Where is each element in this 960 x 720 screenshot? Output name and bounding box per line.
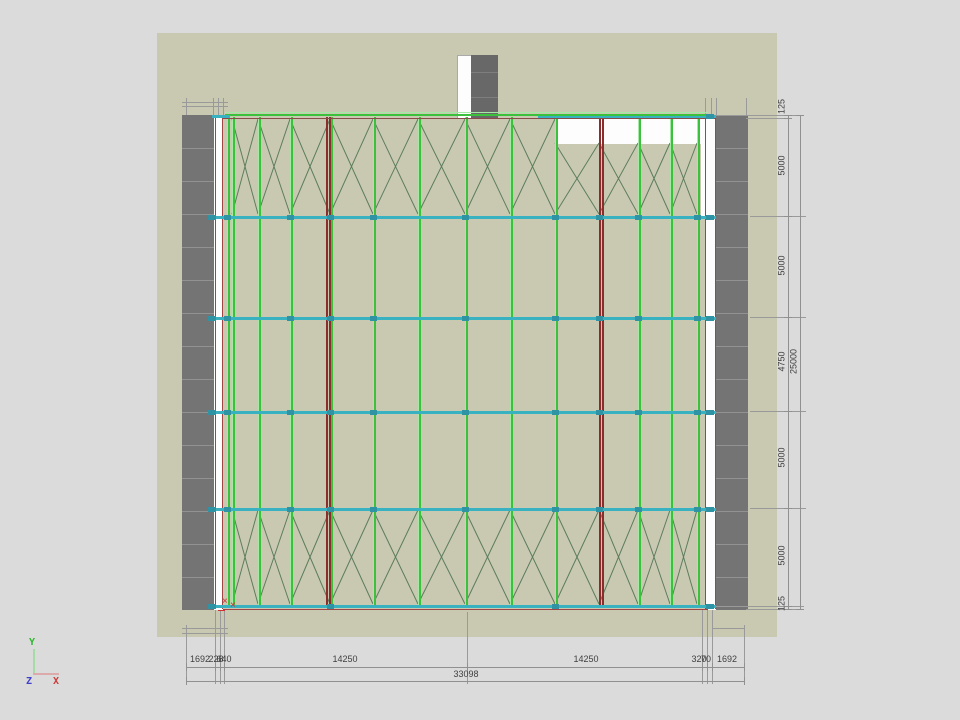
- purlin-line-vertical: [510, 117, 513, 607]
- connector-mark: [327, 507, 334, 512]
- beam-end-cap: [208, 604, 216, 609]
- wall-seam: [182, 478, 214, 479]
- connector-mark: [694, 410, 701, 415]
- dim-tick: [784, 216, 792, 217]
- dim-tick: [784, 411, 792, 412]
- frame-edge-red: [715, 117, 716, 609]
- connector-mark: [635, 316, 642, 321]
- dim-tick: [712, 663, 713, 671]
- origin-marker: ××: [218, 596, 248, 616]
- purlin-line-vertical: [227, 117, 230, 607]
- frame-edge-red: [215, 117, 216, 609]
- dim-line: [186, 681, 744, 682]
- dim-tick: [220, 663, 221, 671]
- beam-end-cap: [208, 215, 216, 220]
- connector-mark: [224, 507, 231, 512]
- wall-seam: [716, 148, 748, 149]
- connector-mark: [287, 507, 294, 512]
- dim-tick: [186, 663, 187, 671]
- dim-tick: [784, 317, 792, 318]
- dim-tick: [744, 663, 745, 671]
- connector-mark: [596, 316, 603, 321]
- connector-mark: [552, 410, 559, 415]
- wall-seam: [716, 412, 748, 413]
- axis-z-label: Z: [26, 677, 32, 687]
- purlin-line-vertical: [373, 117, 376, 607]
- connector-mark: [287, 410, 294, 415]
- connector-mark: [596, 507, 603, 512]
- purlin-line-vertical: [670, 117, 673, 607]
- axis-x-line: [33, 673, 59, 675]
- wall-seam: [716, 379, 748, 380]
- purlin-line-vertical: [258, 117, 261, 607]
- connector-mark: [287, 215, 294, 220]
- wall-seam: [716, 313, 748, 314]
- frame-edge-red: [705, 117, 706, 609]
- purlin-line-vertical: [232, 117, 235, 607]
- frame-bottom-red: [223, 609, 708, 610]
- dim-label-right-4: 5000: [778, 438, 787, 478]
- dim-tick: [702, 663, 703, 671]
- beam-end-cap: [208, 316, 216, 321]
- column-line-red: [599, 117, 604, 608]
- beam-end-cap: [706, 215, 714, 220]
- wall-seam: [182, 148, 214, 149]
- connector-mark: [462, 507, 469, 512]
- chord-line-light: [225, 112, 708, 113]
- axis-y-label: Y: [29, 638, 35, 648]
- wall-seam: [182, 544, 214, 545]
- wall-seam: [716, 214, 748, 215]
- dim-label-right-total: 25000: [790, 342, 799, 382]
- wall-seam: [716, 544, 748, 545]
- beam-end-cap: [706, 604, 714, 609]
- core-seam: [471, 72, 498, 73]
- wall-seam: [716, 478, 748, 479]
- wall-seam: [716, 280, 748, 281]
- bracing-layer: [0, 0, 960, 720]
- wall-seam: [716, 181, 748, 182]
- purlin-line-vertical: [638, 117, 641, 607]
- connector-mark: [370, 410, 377, 415]
- connector-mark: [462, 316, 469, 321]
- chord-line-green: [225, 114, 708, 116]
- wall-seam: [182, 577, 214, 578]
- connector-mark: [327, 316, 334, 321]
- connector-mark: [462, 410, 469, 415]
- chord-line-red: [223, 118, 716, 119]
- dim-tick: [186, 677, 187, 685]
- wall-seam: [182, 445, 214, 446]
- dim-label-right-3: 4750: [778, 342, 787, 382]
- connector-mark: [635, 507, 642, 512]
- wall-seam: [182, 313, 214, 314]
- beam-end-cap: [706, 507, 714, 512]
- connector-mark: [552, 215, 559, 220]
- wall-seam: [182, 379, 214, 380]
- connector-mark: [327, 410, 334, 415]
- connector-mark: [370, 215, 377, 220]
- beam-end-cap: [706, 410, 714, 415]
- connector-mark: [327, 604, 334, 609]
- frame-edge-red: [222, 117, 223, 609]
- wall-seam: [716, 445, 748, 446]
- axis-x-label: X: [53, 677, 59, 687]
- connector-mark: [224, 316, 231, 321]
- connector-mark: [370, 316, 377, 321]
- beam-end-cap: [208, 410, 216, 415]
- dim-tick: [796, 609, 804, 610]
- wall-seam: [716, 511, 748, 512]
- dim-label-right-5: 5000: [778, 536, 787, 576]
- dim-label-bottom-3: 14250: [325, 655, 365, 664]
- axis-y-line: [33, 649, 35, 674]
- connector-mark: [694, 507, 701, 512]
- core-seam: [471, 97, 498, 98]
- wall-seam: [716, 346, 748, 347]
- beam-end-cap: [706, 316, 714, 321]
- dim-label-bottom-2: 640: [204, 655, 244, 664]
- dim-label-right-2: 5000: [778, 246, 787, 286]
- wall-seam: [182, 280, 214, 281]
- connector-mark: [370, 507, 377, 512]
- dim-tick: [224, 663, 225, 671]
- connector-mark: [694, 316, 701, 321]
- dim-label-right-6: 125: [778, 584, 787, 624]
- connector-mark: [552, 507, 559, 512]
- wall-seam: [182, 181, 214, 182]
- beam-end-cap: [208, 507, 216, 512]
- dim-tick: [784, 508, 792, 509]
- purlin-line-vertical: [555, 117, 558, 607]
- dim-tick: [215, 663, 216, 671]
- connector-mark: [287, 316, 294, 321]
- origin-cross: ×: [230, 601, 236, 611]
- connector-mark: [552, 604, 559, 609]
- purlin-line-vertical: [290, 117, 293, 607]
- dim-label-right-0: 125: [778, 87, 787, 127]
- connector-mark: [462, 215, 469, 220]
- dim-tick: [796, 115, 804, 116]
- dim-line: [186, 667, 744, 668]
- beam-end-cap: [706, 114, 714, 119]
- origin-dash: [218, 610, 225, 611]
- dim-label-bottom-4: 14250: [566, 655, 606, 664]
- connector-mark: [327, 215, 334, 220]
- purlin-line-vertical: [418, 117, 421, 607]
- connector-mark: [552, 316, 559, 321]
- connector-mark: [596, 215, 603, 220]
- connector-mark: [635, 215, 642, 220]
- connector-mark: [635, 410, 642, 415]
- column-line-red: [326, 117, 331, 608]
- drawing-canvas[interactable]: 1692228640142501425032070169233098125500…: [0, 0, 960, 720]
- purlin-line-vertical: [697, 117, 700, 607]
- dim-label-right-1: 5000: [778, 146, 787, 186]
- wall-seam: [716, 247, 748, 248]
- dim-label-bottom-total: 33098: [446, 670, 486, 679]
- dim-tick: [744, 677, 745, 685]
- purlin-line-vertical: [465, 117, 468, 607]
- dim-line: [800, 115, 801, 609]
- wall-seam: [182, 247, 214, 248]
- wall-seam: [182, 346, 214, 347]
- beam-line-cyan: [212, 605, 716, 608]
- beam-cap-cyan: [212, 115, 230, 118]
- connector-mark: [694, 215, 701, 220]
- connector-mark: [596, 410, 603, 415]
- connector-mark: [224, 215, 231, 220]
- wall-seam: [716, 577, 748, 578]
- dim-label-bottom-7: 1692: [707, 655, 747, 664]
- connector-mark: [224, 410, 231, 415]
- origin-cross: ×: [222, 597, 228, 607]
- dim-tick: [707, 663, 708, 671]
